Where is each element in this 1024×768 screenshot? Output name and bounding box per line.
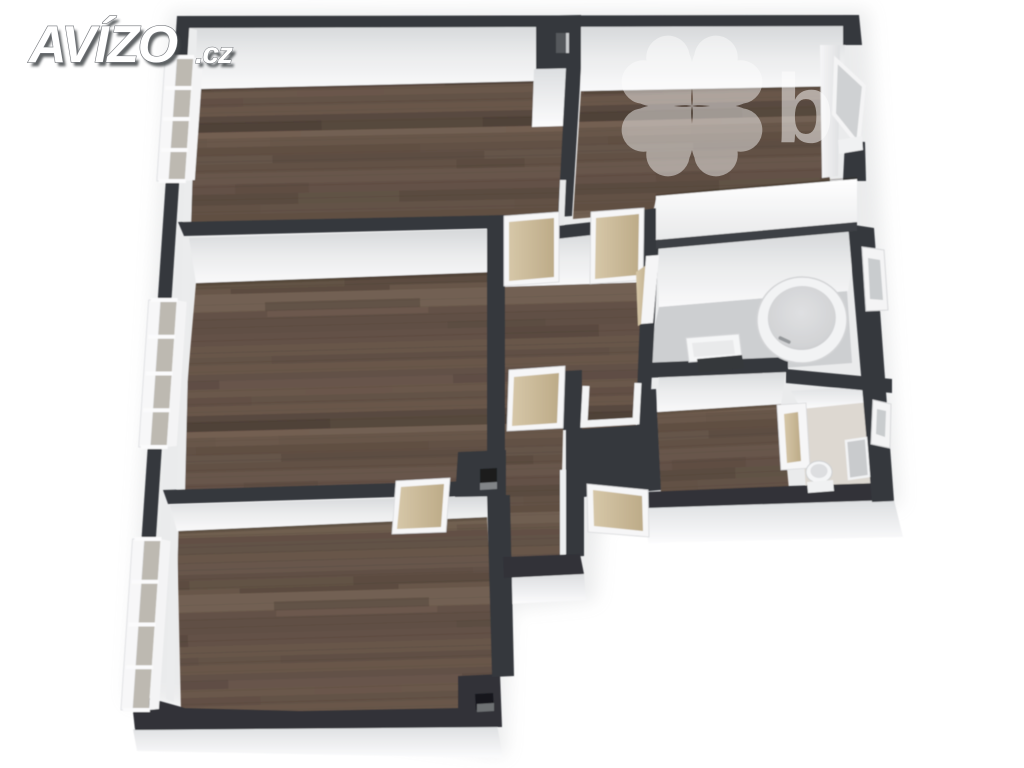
svg-text:.cz: .cz (195, 37, 233, 70)
svg-text:b: b (775, 54, 834, 163)
svg-text:AVÍZO: AVÍZO (27, 16, 178, 74)
